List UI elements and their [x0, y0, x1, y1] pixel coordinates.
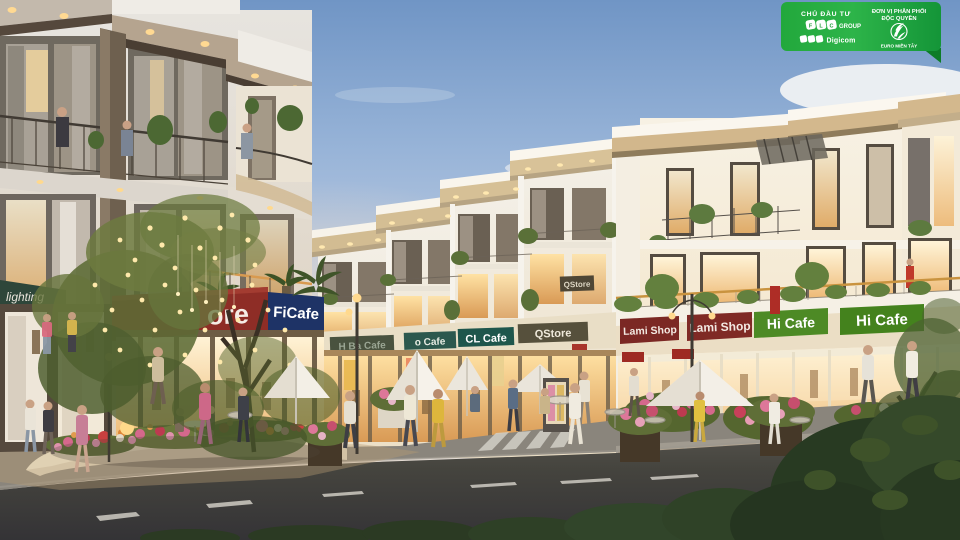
svg-text:Lami Shop: Lami Shop — [623, 324, 677, 338]
svg-text:Digicom: Digicom — [826, 38, 855, 45]
svg-text:CL Cafe: CL Cafe — [465, 332, 507, 345]
svg-text:Hi Cafe: Hi Cafe — [767, 314, 816, 332]
svg-text:EURO MIỀN TÂY: EURO MIỀN TÂY — [881, 43, 918, 49]
svg-text:Hi Cafe: Hi Cafe — [856, 311, 908, 330]
svg-text:o Cafe: o Cafe — [415, 336, 446, 348]
svg-text:ĐỘC QUYỀN: ĐỘC QUYỀN — [881, 14, 916, 22]
svg-text:GROUP: GROUP — [839, 24, 861, 30]
svg-text:FiCafe: FiCafe — [273, 304, 320, 323]
svg-text:QStore: QStore — [564, 280, 592, 290]
svg-text:ĐƠN VỊ PHÂN PHỐI: ĐƠN VỊ PHÂN PHỐI — [872, 8, 927, 15]
svg-text:C: C — [830, 24, 834, 30]
svg-text:QStore: QStore — [535, 327, 572, 340]
svg-text:Lami Shop: Lami Shop — [689, 319, 751, 335]
